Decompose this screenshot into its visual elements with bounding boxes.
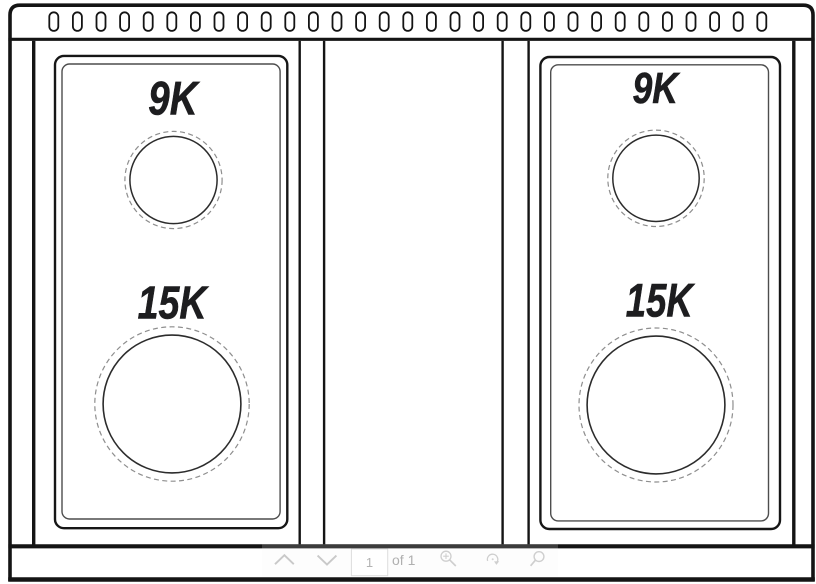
- svg-text:15K: 15K: [626, 274, 695, 327]
- svg-text:of 1: of 1: [392, 552, 416, 568]
- svg-text:1: 1: [366, 555, 373, 570]
- svg-text:9K: 9K: [148, 71, 200, 124]
- svg-text:15K: 15K: [138, 277, 209, 329]
- svg-text:9K: 9K: [632, 64, 680, 113]
